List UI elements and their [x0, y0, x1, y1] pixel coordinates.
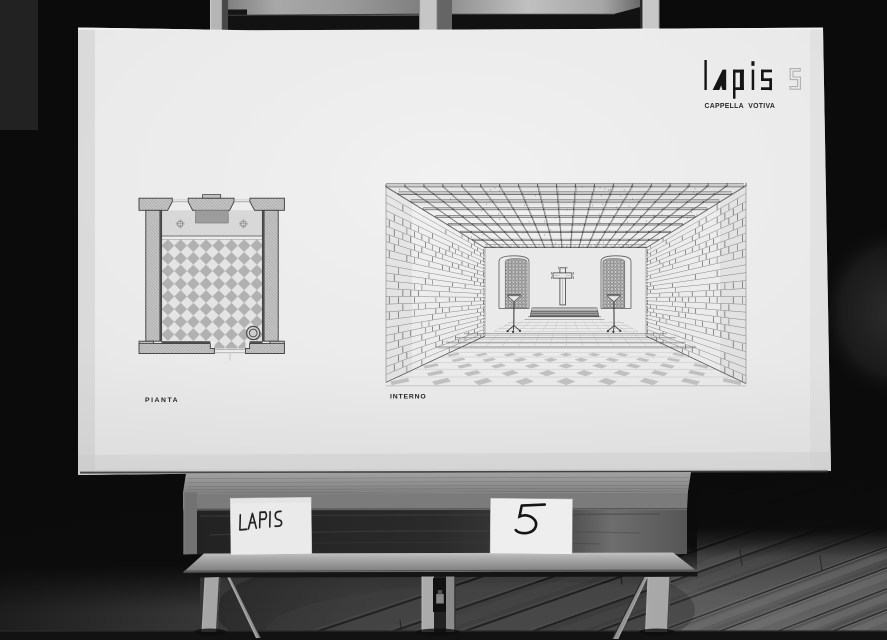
svg-text:CAPPELLA VOTIVA: CAPPELLA VOTIVA — [705, 103, 776, 110]
svg-text:INTERNO: INTERNO — [390, 394, 427, 401]
svg-text:PIANTA: PIANTA — [145, 397, 179, 404]
